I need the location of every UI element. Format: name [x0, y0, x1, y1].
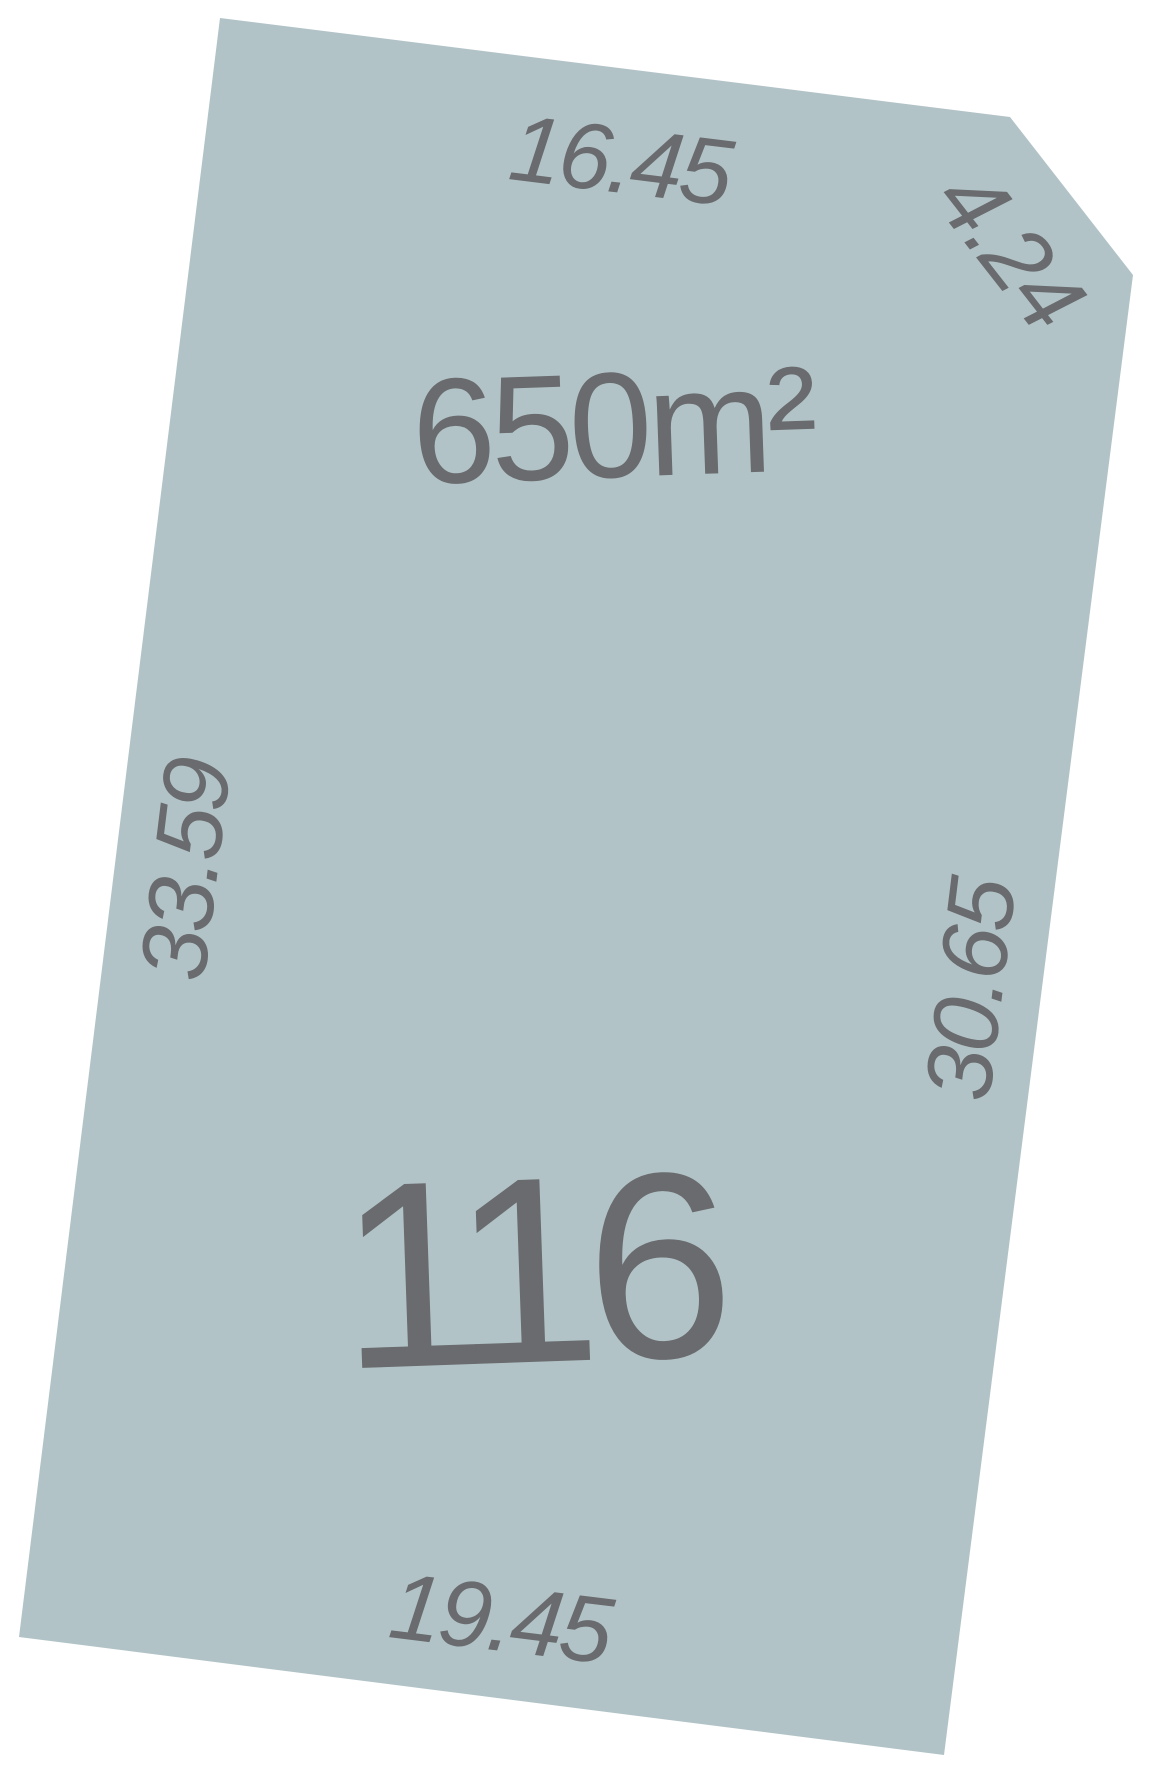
lot-number-label: 116 — [334, 1116, 728, 1425]
lot-area-label: 650m² — [409, 334, 818, 516]
lot-plan-svg: 16.45 4.24 33.59 30.65 19.45 650m² 116 — [0, 0, 1150, 1774]
lot-plan-canvas: 16.45 4.24 33.59 30.65 19.45 650m² 116 — [0, 0, 1150, 1774]
